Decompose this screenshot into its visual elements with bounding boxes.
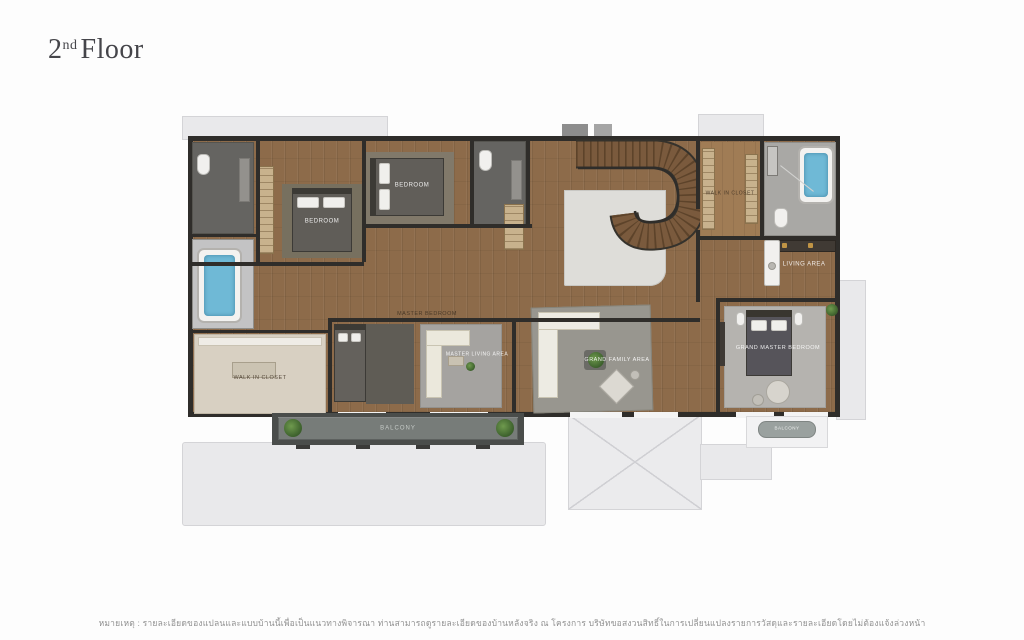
- wall: [470, 137, 474, 228]
- label-balcony-right: BALCONY: [774, 427, 799, 432]
- floor-plan: BEDROOM BEDROOM WALK IN CLOSET LIVING AR…: [180, 112, 870, 527]
- headboard-master: [334, 324, 366, 330]
- window: [570, 412, 622, 418]
- pillow: [771, 320, 787, 331]
- lounge-chair: [766, 380, 790, 404]
- balcony-post: [416, 445, 430, 449]
- plant-icon: [496, 419, 514, 437]
- label-living-area: LIVING AREA: [783, 262, 826, 269]
- wall: [362, 224, 532, 228]
- plant-icon: [466, 362, 475, 371]
- wall: [716, 298, 720, 417]
- balcony-post: [476, 445, 490, 449]
- pillow: [351, 333, 361, 342]
- bathtub-water: [804, 153, 828, 197]
- page: { "title": { "number": "2", "ordinal": "…: [0, 0, 1024, 640]
- window: [634, 412, 678, 418]
- pillow: [338, 333, 348, 342]
- side-table: [752, 394, 764, 406]
- bar-sink: [768, 262, 776, 270]
- toilet-icon: [774, 208, 788, 228]
- floor-ordinal: nd: [63, 38, 78, 53]
- label-balcony: BALCONY: [380, 426, 416, 433]
- label-walk-in-closet-left: WALK IN CLOSET: [234, 375, 287, 381]
- wall: [526, 137, 530, 228]
- tv-cabinet: [720, 322, 725, 366]
- plant-icon: [284, 419, 302, 437]
- wall: [696, 137, 700, 209]
- wardrobe-right-b: [745, 154, 758, 224]
- floor-number: 2: [48, 34, 63, 65]
- label-master-bedroom: MASTER BEDROOM: [397, 311, 457, 317]
- balcony-post: [296, 445, 310, 449]
- wall: [362, 137, 366, 262]
- label-walk-in-closet-right: WALK IN CLOSET: [706, 191, 755, 197]
- label-grand-master-bedroom: GRAND MASTER BEDROOM: [736, 345, 820, 351]
- page-title: 2ndFloor: [48, 34, 144, 66]
- wall: [192, 330, 330, 333]
- headboard-grand-master: [746, 310, 792, 317]
- nightstand: [794, 312, 803, 326]
- nightstand: [736, 312, 745, 326]
- floor-word: Floor: [81, 34, 144, 65]
- balcony-post: [356, 445, 370, 449]
- disclaimer-note: หมายเหตุ : รายละเอียดของแปลนและแบบบ้านนี…: [0, 616, 1024, 630]
- label-master-living-area: MASTER LIVING AREA: [446, 352, 508, 358]
- side-table: [630, 370, 640, 380]
- wall: [700, 236, 840, 240]
- wardrobe-right-a: [702, 148, 715, 230]
- wall: [696, 230, 700, 302]
- plant-icon: [826, 304, 838, 316]
- wall: [760, 137, 764, 240]
- wall: [192, 234, 256, 237]
- closet-counter: [198, 337, 322, 346]
- wall: [188, 262, 364, 266]
- counter-item: [808, 243, 813, 248]
- rug-master-bedroom: [366, 324, 414, 404]
- counter-item: [782, 243, 787, 248]
- wall: [512, 318, 516, 417]
- vanity-right: [767, 146, 778, 176]
- wall: [256, 141, 260, 265]
- pillow: [751, 320, 767, 331]
- label-grand-family-area: GRAND FAMILY AREA: [584, 357, 649, 363]
- sofa-master-living-top: [426, 330, 470, 346]
- wall: [718, 298, 840, 302]
